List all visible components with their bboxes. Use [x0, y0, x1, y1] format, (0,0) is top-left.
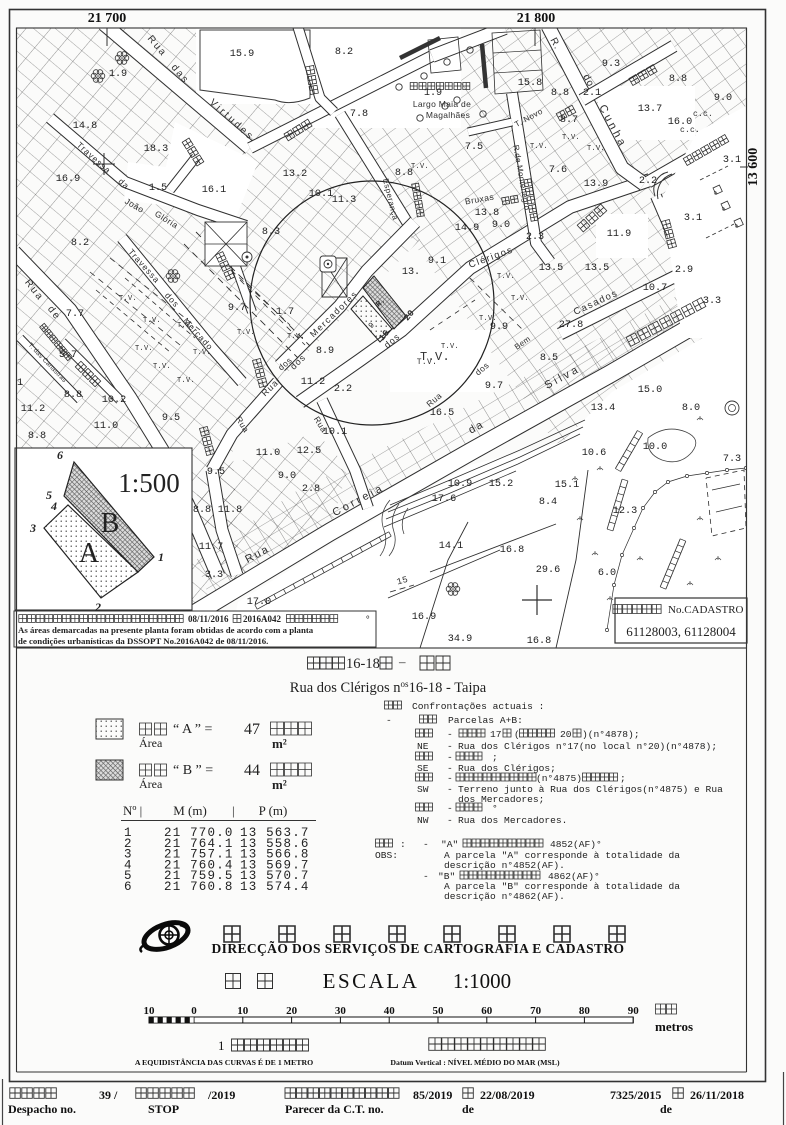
svg-text:T.V.: T.V. [287, 333, 305, 341]
svg-text:T.V.: T.V. [441, 343, 459, 351]
svg-text:10.2: 10.2 [102, 395, 126, 406]
svg-text:50: 50 [433, 1005, 445, 1017]
svg-text:0: 0 [191, 1005, 197, 1017]
svg-text:Rua dos Clérigos nos16-18 - T: Rua dos Clérigos nos16-18 - Taipa [290, 679, 487, 696]
svg-text:)(n°4878);: )(n°4878); [582, 729, 640, 740]
svg-text:7.6: 7.6 [549, 165, 567, 176]
svg-text:3: 3 [29, 521, 36, 535]
svg-text:M (m): M (m) [173, 803, 207, 818]
svg-text:-: - [423, 871, 429, 882]
svg-text:m²: m² [272, 777, 287, 792]
svg-text:°: ° [492, 803, 498, 814]
svg-text::: : [400, 839, 406, 850]
svg-text:13.9: 13.9 [584, 179, 608, 190]
svg-text:14.1: 14.1 [439, 541, 463, 552]
svg-text:10.9: 10.9 [448, 479, 472, 490]
svg-text:15.8: 15.8 [518, 78, 542, 89]
svg-text:T.V.: T.V. [511, 295, 529, 303]
svg-text:/2019: /2019 [207, 1088, 235, 1102]
svg-text:7.7: 7.7 [66, 309, 84, 320]
svg-text:60: 60 [481, 1005, 493, 1017]
svg-text:1:1000: 1:1000 [453, 969, 511, 993]
svg-text:15.0: 15.0 [638, 385, 662, 396]
svg-text:11.0: 11.0 [94, 421, 118, 432]
svg-text:21 700: 21 700 [88, 11, 127, 26]
svg-text:“ A ” =: “ A ” = [173, 722, 212, 737]
svg-text:9.3: 9.3 [602, 59, 620, 70]
svg-text:3.3: 3.3 [205, 570, 223, 581]
svg-text:1: 1 [218, 1038, 225, 1053]
svg-text:;: ; [492, 752, 498, 763]
svg-text:SW: SW [417, 784, 429, 795]
svg-text:T.V.: T.V. [497, 273, 515, 281]
svg-text:13.8: 13.8 [475, 208, 499, 219]
svg-text:7325/2015: 7325/2015 [610, 1088, 661, 1102]
svg-text:ESCALA: ESCALA [323, 969, 420, 993]
svg-text:6.0: 6.0 [598, 568, 616, 579]
svg-text:10.1: 10.1 [309, 189, 333, 200]
svg-text:8.8: 8.8 [551, 88, 569, 99]
svg-text:-: - [447, 784, 453, 795]
svg-text:"A": "A" [441, 839, 458, 850]
svg-text:13 574.4: 13 574.4 [240, 880, 310, 894]
svg-text:13.: 13. [402, 267, 420, 278]
svg-text:90: 90 [628, 1005, 640, 1017]
svg-text:8.2: 8.2 [71, 238, 89, 249]
svg-text:8.3: 8.3 [262, 227, 280, 238]
svg-text:9.7: 9.7 [485, 381, 503, 392]
svg-text:Datum Vertical : NÍVEL MÉDIO D: Datum Vertical : NÍVEL MÉDIO DO MAR (MSL… [390, 1057, 560, 1067]
svg-text:11.9: 11.9 [607, 229, 631, 240]
svg-text:22/08/2019: 22/08/2019 [480, 1088, 535, 1102]
svg-text:Área: Área [139, 777, 163, 791]
svg-text:Área: Área [139, 736, 163, 750]
svg-text:17.6: 17.6 [432, 494, 456, 505]
svg-text:Despacho no.: Despacho no. [8, 1102, 76, 1116]
svg-text:20: 20 [560, 729, 572, 740]
svg-text:“ B ” =: “ B ” = [173, 763, 213, 778]
svg-text:T.V.: T.V. [587, 145, 605, 153]
svg-text:13.7: 13.7 [638, 104, 662, 115]
svg-text:DIRECÇÃO DOS SERVIÇOS DE CARTO: DIRECÇÃO DOS SERVIÇOS DE CARTOGRAFIA E C… [212, 941, 625, 956]
svg-text:9.5: 9.5 [162, 413, 180, 424]
svg-text:2.2: 2.2 [334, 384, 352, 395]
svg-text:7.5: 7.5 [465, 142, 483, 153]
svg-text:9.7: 9.7 [228, 303, 246, 314]
svg-text:2.9: 2.9 [675, 265, 693, 276]
svg-text:Largo Maia de: Largo Maia de [413, 99, 471, 109]
svg-text:10: 10 [237, 1005, 249, 1017]
svg-text:;: ; [620, 773, 626, 784]
svg-text:8.8: 8.8 [28, 431, 46, 442]
svg-text:(n°4875): (n°4875) [536, 773, 582, 784]
svg-text:P (m): P (m) [259, 803, 288, 818]
svg-text:9.0: 9.0 [714, 93, 732, 104]
svg-text:de condições urbanísticas da D: de condições urbanísticas da DSSOPT No.2… [18, 636, 268, 646]
svg-text:1: 1 [17, 378, 23, 389]
svg-text:-: - [447, 741, 453, 752]
svg-text:11.0: 11.0 [256, 448, 280, 459]
svg-text:2.2: 2.2 [639, 176, 657, 187]
svg-text:°: ° [366, 614, 370, 624]
svg-text:1.5: 1.5 [149, 183, 167, 194]
svg-text:T.V.: T.V. [562, 134, 580, 142]
svg-text:16.5: 16.5 [430, 408, 454, 419]
svg-text:metros: metros [655, 1019, 693, 1034]
svg-text:16.9: 16.9 [56, 174, 80, 185]
svg-text:T.V.: T.V. [237, 329, 255, 337]
svg-text:27.8: 27.8 [559, 320, 583, 331]
svg-text:As áreas demarcadas na present: As áreas demarcadas na presente planta f… [18, 625, 314, 635]
svg-text:B: B [101, 508, 120, 539]
svg-text:11.2: 11.2 [301, 377, 325, 388]
svg-text:T.V.: T.V. [417, 358, 437, 367]
svg-text:61128003, 61128004: 61128003, 61128004 [626, 624, 736, 639]
svg-text:47: 47 [244, 721, 260, 738]
svg-text:15.2: 15.2 [489, 479, 513, 490]
svg-text:OBS:: OBS: [375, 850, 398, 861]
svg-text:10.6: 10.6 [582, 448, 606, 459]
svg-text:T.V.: T.V. [119, 295, 137, 303]
svg-text:NW: NW [417, 815, 429, 826]
svg-text:Rua dos Clérigos n°17(no local: Rua dos Clérigos n°17(no local n°20)(n°4… [458, 741, 717, 752]
svg-text:2.3: 2.3 [526, 232, 544, 243]
svg-text:16.0: 16.0 [668, 117, 692, 128]
svg-text:44: 44 [244, 762, 260, 779]
svg-text:de: de [462, 1102, 475, 1116]
svg-text:12.5: 12.5 [297, 446, 321, 457]
svg-text:16.1: 16.1 [202, 185, 226, 196]
svg-text:11.7: 11.7 [199, 542, 223, 553]
svg-text:10.7: 10.7 [643, 283, 667, 294]
svg-text:26/11/2018: 26/11/2018 [690, 1088, 744, 1102]
svg-text:A: A [79, 538, 100, 569]
svg-text:16-18: 16-18 [346, 656, 380, 672]
svg-text:Parcelas A+B:: Parcelas A+B: [448, 715, 523, 726]
svg-text:15.9: 15.9 [230, 49, 254, 60]
svg-text:8.2: 8.2 [335, 47, 353, 58]
svg-text:39 /: 39 / [99, 1088, 118, 1102]
svg-text:08/11/2016: 08/11/2016 [188, 614, 229, 624]
svg-text:6: 6 [124, 880, 133, 894]
svg-text:-: - [447, 729, 453, 740]
svg-text:11.3: 11.3 [332, 195, 356, 206]
svg-text:1: 1 [158, 550, 164, 564]
svg-text:70: 70 [530, 1005, 542, 1017]
svg-text:T.V.: T.V. [177, 377, 195, 385]
svg-text:2.1: 2.1 [583, 88, 601, 99]
svg-text:80: 80 [579, 1005, 591, 1017]
svg-text:|: | [232, 803, 235, 818]
svg-text:8.9: 8.9 [316, 346, 334, 357]
svg-text:T.V.: T.V. [143, 317, 161, 325]
svg-text:3.1: 3.1 [723, 155, 741, 166]
svg-text:21 800: 21 800 [517, 11, 556, 26]
svg-text:m²: m² [272, 736, 287, 751]
svg-text:T.V.: T.V. [135, 345, 153, 353]
svg-text:1.9: 1.9 [109, 69, 127, 80]
svg-text:8.8: 8.8 [193, 505, 211, 516]
svg-text:16.9: 16.9 [412, 612, 436, 623]
svg-text:10.0: 10.0 [643, 442, 667, 453]
svg-text:20: 20 [286, 1005, 298, 1017]
svg-text:29.6: 29.6 [536, 565, 560, 576]
svg-text:13.2: 13.2 [283, 169, 307, 180]
svg-text:descrição n°4852(AF).: descrição n°4852(AF). [444, 860, 565, 871]
svg-text:Rua dos Mercadores.: Rua dos Mercadores. [458, 815, 567, 826]
svg-text:14.9: 14.9 [455, 223, 479, 234]
svg-text:13.5: 13.5 [539, 263, 563, 274]
svg-text:40: 40 [384, 1005, 396, 1017]
svg-text:T.V.: T.V. [153, 363, 171, 371]
svg-text:9.5: 9.5 [207, 467, 225, 478]
svg-text:T.V.: T.V. [177, 322, 195, 330]
svg-text:-: - [423, 839, 429, 850]
svg-text:16.8: 16.8 [527, 636, 551, 647]
svg-text:A EQUIDISTÂNCIA DAS CURVAS É D: A EQUIDISTÂNCIA DAS CURVAS É DE 1 METRO [135, 1057, 313, 1067]
svg-text:Confrontações actuais :: Confrontações actuais : [412, 701, 544, 712]
svg-text:8.5: 8.5 [540, 353, 558, 364]
svg-text:-: - [447, 815, 453, 826]
svg-text:13.5: 13.5 [585, 263, 609, 274]
svg-text:No.CADASTRO: No.CADASTRO [668, 604, 744, 616]
svg-text:21 760.8: 21 760.8 [164, 880, 234, 894]
svg-text:SE: SE [417, 763, 429, 774]
svg-text:7.3: 7.3 [723, 454, 741, 465]
svg-text:18.3: 18.3 [144, 144, 168, 155]
svg-text:7.8: 7.8 [350, 109, 368, 120]
svg-text:11.8: 11.8 [218, 505, 242, 516]
svg-text:4: 4 [50, 499, 57, 513]
svg-text:13.4: 13.4 [591, 403, 615, 414]
svg-text:11.2: 11.2 [21, 404, 45, 415]
svg-text:34.9: 34.9 [448, 634, 472, 645]
svg-text:13 600: 13 600 [746, 148, 761, 187]
svg-text:c.c.: c.c. [693, 110, 713, 119]
svg-text:16.8: 16.8 [500, 545, 524, 556]
svg-text:T.V.: T.V. [530, 143, 548, 151]
svg-text:Magalhães: Magalhães [426, 110, 470, 120]
svg-text:1.7: 1.7 [276, 307, 294, 318]
svg-text:-: - [447, 803, 453, 814]
svg-text:de: de [660, 1102, 673, 1116]
svg-text:9.9: 9.9 [490, 322, 508, 333]
svg-text:(: ( [514, 729, 520, 740]
svg-text:9.1: 9.1 [428, 256, 446, 267]
svg-text:3.1: 3.1 [684, 213, 702, 224]
svg-text:-: - [447, 773, 453, 784]
svg-text:NE: NE [417, 741, 429, 752]
svg-text:30: 30 [335, 1005, 347, 1017]
svg-text:9.0: 9.0 [278, 471, 296, 482]
svg-text:STOP: STOP [148, 1102, 179, 1116]
svg-text:Nº |: Nº | [123, 803, 142, 818]
svg-text:8.4: 8.4 [539, 497, 557, 508]
svg-text:9.0: 9.0 [492, 220, 510, 231]
svg-text:Parecer da C.T. no.: Parecer da C.T. no. [285, 1102, 384, 1116]
svg-text:17: 17 [490, 729, 502, 740]
svg-text:17.0: 17.0 [247, 597, 271, 608]
svg-text:descrição n°4862(AF).: descrição n°4862(AF). [444, 891, 565, 902]
svg-text:4852(AF)°: 4852(AF)° [550, 839, 602, 850]
svg-text:8.8: 8.8 [64, 390, 82, 401]
svg-text:8.8: 8.8 [669, 74, 687, 85]
svg-text:1:500: 1:500 [118, 468, 180, 498]
svg-text:6: 6 [57, 448, 63, 462]
svg-text:2016A042: 2016A042 [243, 614, 281, 624]
svg-text:14.8: 14.8 [73, 121, 97, 132]
svg-text:2.8: 2.8 [302, 484, 320, 495]
svg-text:-: - [447, 752, 453, 763]
svg-text:–: – [398, 654, 406, 669]
svg-text:12.3: 12.3 [613, 506, 637, 517]
svg-text:10: 10 [144, 1005, 156, 1017]
svg-text:8.0: 8.0 [682, 403, 700, 414]
svg-text:T.V.: T.V. [479, 315, 497, 323]
svg-text:T.V.: T.V. [411, 163, 429, 171]
svg-text:85/2019: 85/2019 [413, 1088, 452, 1102]
svg-text:T.V.: T.V. [193, 349, 211, 357]
svg-text:-: - [386, 715, 392, 726]
svg-text:15.1: 15.1 [555, 480, 579, 491]
